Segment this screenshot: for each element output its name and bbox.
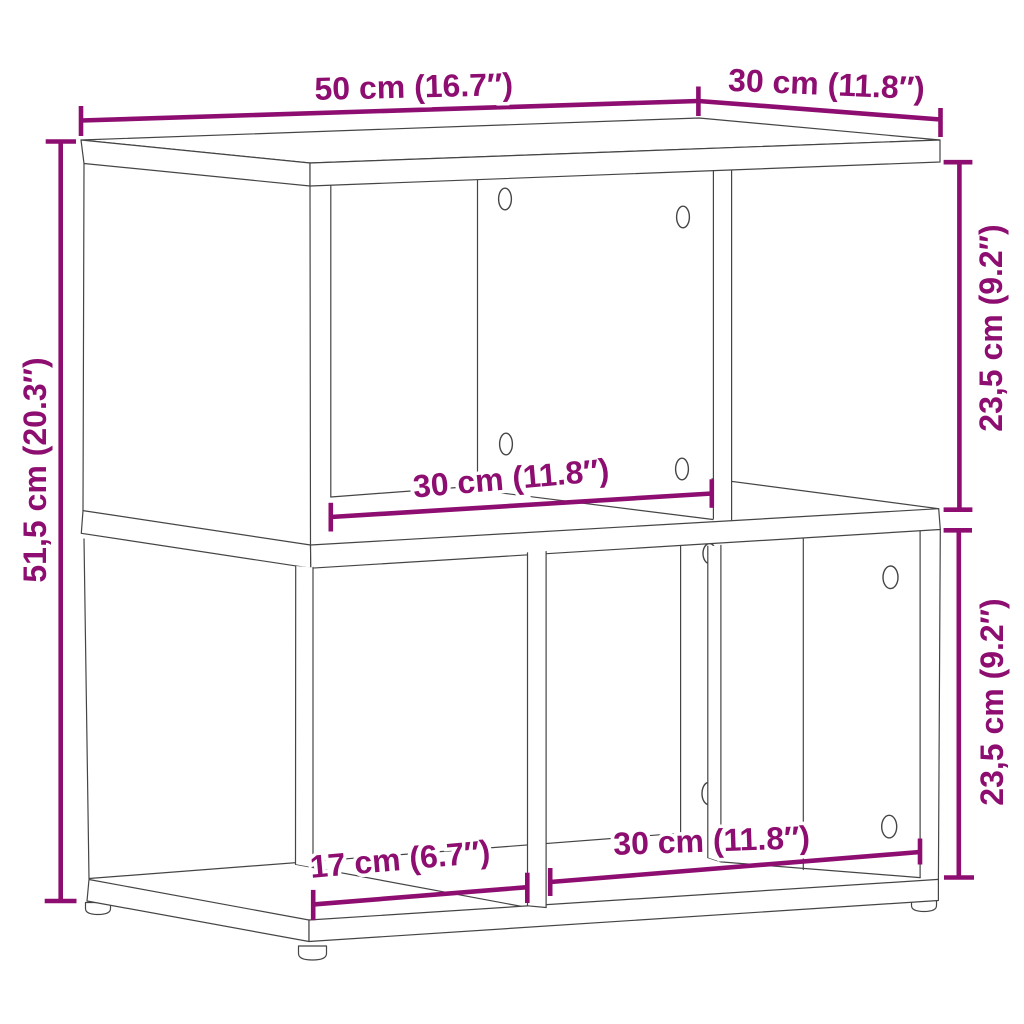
svg-text:51,5 cm (20.3″): 51,5 cm (20.3″): [17, 357, 53, 582]
svg-text:23,5 cm (9.2″): 23,5 cm (9.2″): [973, 224, 1009, 431]
svg-text:30 cm (11.8″): 30 cm (11.8″): [613, 819, 811, 862]
svg-text:50 cm (16.7″): 50 cm (16.7″): [314, 66, 513, 107]
svg-text:23,5 cm (9.2″): 23,5 cm (9.2″): [974, 598, 1010, 805]
